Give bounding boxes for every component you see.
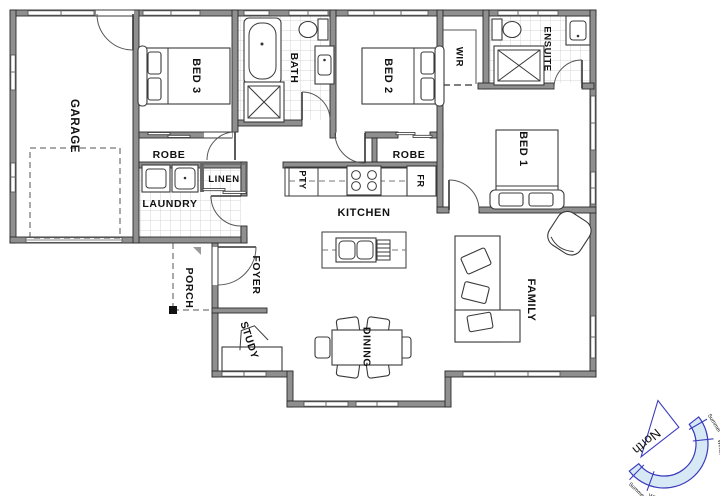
laundry-label: LAUNDRY [142, 198, 197, 210]
pantry-label: PTY [298, 170, 308, 189]
floor-plan-page: GARAGE BED 3 ROBE BATH BED 2 ROBE WIR EN… [0, 0, 720, 496]
north-compass: Summer Winter Winter Summer North [597, 380, 720, 496]
wir-label: WIR [454, 47, 465, 67]
robe2-label: ROBE [393, 149, 426, 161]
compass-tick-label-0: Summer [706, 413, 720, 434]
dining-label: DINING [361, 327, 373, 367]
bath-vanity [315, 46, 334, 84]
foyer-label: FOYER [250, 255, 262, 294]
bathtub [244, 18, 281, 84]
compass-tick-label-3: Summer [627, 482, 646, 496]
family-armchair [544, 207, 596, 259]
family-label: FAMILY [525, 279, 537, 322]
kitchen-island [322, 232, 406, 268]
bed3-label: BED 3 [190, 58, 202, 93]
bed2-label: BED 2 [382, 58, 394, 93]
linen-label: LINEN [208, 174, 240, 185]
family-sofa [455, 236, 520, 342]
bed2-furniture [362, 46, 444, 106]
robe3-label: ROBE [153, 149, 186, 161]
garage-label: GARAGE [68, 99, 80, 153]
floor-plan-canvas: GARAGE BED 3 ROBE BATH BED 2 ROBE WIR EN… [0, 0, 720, 496]
bath-shower [244, 82, 284, 122]
compass-band [629, 417, 720, 496]
compass-tick-label-1: Winter [716, 440, 720, 457]
fridge-label: FR [416, 174, 426, 187]
bath-label: BATH [288, 53, 300, 84]
bed1-label: BED 1 [517, 131, 529, 166]
dish-rack [377, 240, 390, 260]
ensuite-shower [494, 46, 544, 85]
garage-slab-outline [30, 148, 120, 238]
bed3-furniture [138, 46, 230, 106]
ensuite-label: ENSUITE [542, 26, 553, 71]
porch-label: PORCH [183, 268, 195, 309]
cooktop [347, 166, 381, 195]
kitchen-label: KITCHEN [337, 207, 390, 219]
ensuite-vanity [566, 16, 590, 45]
step-marker [193, 247, 201, 255]
